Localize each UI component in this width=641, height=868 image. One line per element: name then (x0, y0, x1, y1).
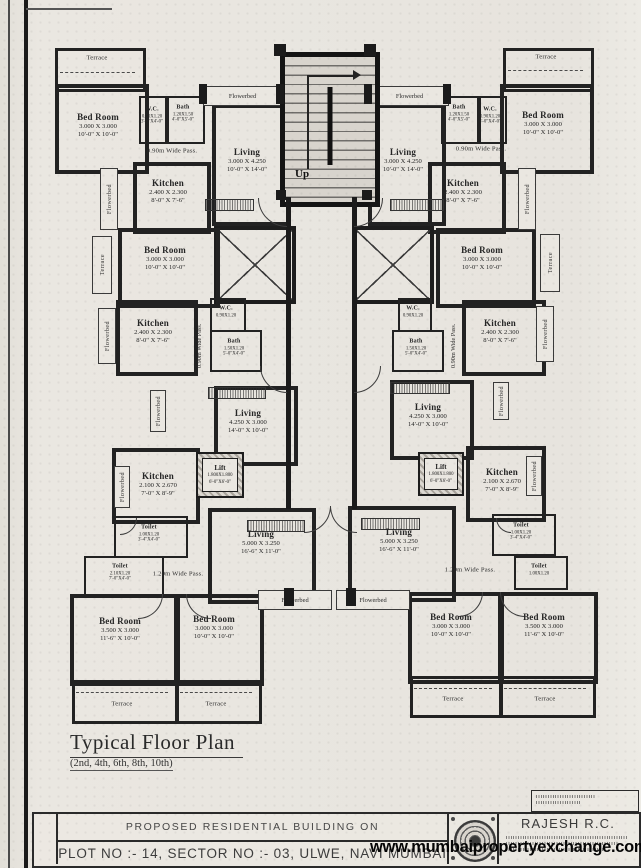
stair-up-label: Up (295, 168, 309, 180)
scanned-floor-plan-sheet: Terrace Bed Room 3.000 X 3.000 10'-0" X … (0, 0, 641, 868)
terrace-dashed-line (504, 688, 586, 689)
duct-shaft-left (214, 226, 296, 304)
duct-shaft-right (352, 226, 434, 304)
illegible-revision-text (536, 795, 596, 798)
emblem-dot (451, 817, 455, 821)
terrace-strip: Terrace (92, 236, 112, 294)
room-label-bath-top-right: Bath 1.20X1.50 4'-0"X5'-0" (448, 104, 470, 123)
room-label-bedroom-bottom-2: Bed Room 3.000 X 3.000 10'-0" X 10'-0" (193, 614, 235, 642)
room-label-bedroom-mid-left: Bed Room 3.000 X 3.000 10'-0" X 10'-0" (144, 245, 186, 273)
room-label-bedroom-top-left: Bed Room 3.000 X 3.000 10'-0" X 10'-0" (77, 112, 119, 140)
lift-right: Lift 1.800X1.800 6'-0"X6'-0" (418, 452, 464, 496)
terrace-dashed-line (414, 688, 492, 689)
room-label-kitchen-top-right: Kitchen 2.400 X 2.300 8'-0" X 7'-6" (444, 178, 482, 206)
dimension-strip (390, 199, 444, 211)
room-label-toilet-bottom-right-1: Toilet 1.00X1.20 3'-4"X4'-0" (510, 522, 532, 541)
flowerbed-strip: Flowerbed (536, 306, 554, 362)
illegible-revision-text (536, 801, 580, 804)
room-label-toilet-bottom-left-2: Toilet 2.10X1.20 7'-0"X4'-0" (109, 563, 131, 582)
room-label-bedroom-mid-right: Bed Room 3.000 X 3.000 10'-0" X 10'-0" (461, 245, 503, 273)
room-label-living-lower-left: Living 4.250 X 3.000 14'-0" X 10'-0" (228, 408, 268, 436)
room-label-living-top-right: Living 3.000 X 4.250 10'-0" X 14'-0" (383, 147, 423, 175)
door-arc (304, 506, 331, 533)
architect-name: RAJESH R.C. (499, 816, 637, 834)
terrace-dashed-line (76, 692, 168, 693)
room-label-kitchen-mid-left: Kitchen 2.400 X 2.300 8'-0" X 7'-6" (134, 318, 172, 346)
plan-subtitle: (2nd, 4th, 6th, 8th, 10th) (70, 758, 173, 771)
room-label-living-top-left: Living 3.000 X 4.250 10'-0" X 14'-0" (227, 147, 267, 175)
stair-rail (328, 87, 333, 165)
lift-left: Lift 1.800X1.800 6'-0"X6'-0" (196, 452, 244, 498)
door-arc (330, 506, 357, 533)
lift-label: Lift 1.800X1.800 6'-0"X6'-0" (428, 463, 453, 485)
room-label-toilet-bottom-right-2: Toilet 1.00X1.20 (529, 563, 549, 576)
wall-column (443, 84, 451, 104)
dimension-strip (390, 382, 450, 394)
passage-label: 0.90m Wide Pass. (147, 148, 197, 155)
room-label-bedroom-bottom-3: Bed Room 3.000 X 3.000 10'-0" X 10'-0" (430, 612, 472, 640)
door-arc (354, 366, 381, 393)
flowerbed-strip: Flowerbed (150, 390, 166, 432)
wall-column (274, 44, 286, 56)
sheet-corner-tick (26, 8, 112, 10)
wall-column (346, 588, 356, 606)
room-label-wc-top-left: W.C. 0.90X1.20 3'-0"X4'-0" (141, 106, 163, 125)
room-label-bedroom-bottom-4: Bed Room 3.500 X 3.000 11'-6" X 10'-0" (523, 612, 565, 640)
room-label-bath-mid-left: Bath 1.50X1.20 5'-0"X4'-0" (223, 338, 245, 357)
room-label-toilet-bottom-left-1: Toilet 1.00X1.20 3'-4"X4'-0" (138, 524, 160, 543)
titleblock-line1: PROPOSED RESIDENTIAL BUILDING ON (58, 814, 447, 840)
room-label-kitchen-lower-right: Kitchen 2.100 X 2.670 7'-0" X 8'-9" (483, 467, 521, 495)
room-label-bedroom-top-right: Bed Room 3.000 X 3.000 10'-0" X 10'-0" (522, 110, 564, 138)
room-label-living-lower-right: Living 4.250 X 3.000 14'-0" X 10'-0" (408, 402, 448, 430)
corridor-wall (286, 197, 291, 509)
emblem-dot (491, 817, 495, 821)
room-label-living-bottom-left: Living 5.000 X 3.250 16'-6" X 11'-0" (241, 529, 281, 557)
wall-column (364, 44, 376, 56)
plan-title: Typical Floor Plan (70, 730, 243, 758)
room-label-bath-mid-right: Bath 1.50X1.20 5'-0"X4'-0" (405, 338, 427, 357)
wall-column (364, 84, 372, 104)
flowerbed-strip: Flowerbed (203, 86, 282, 106)
terrace-dashed-line (508, 70, 583, 71)
lift-label: Lift 1.800X1.800 6'-0"X6'-0" (207, 464, 232, 486)
watermark-text: www.mumbaipropertyexchange.com (370, 838, 641, 857)
terrace-label: Terrace (535, 54, 556, 61)
passage-label: 1.20m Wide Pass. (153, 571, 203, 578)
passage-label: 0.90m Wide Pass. (456, 146, 506, 153)
flowerbed-strip: Flowerbed (98, 308, 116, 364)
dimension-strip (208, 387, 266, 399)
room-label-bedroom-bottom-1: Bed Room 3.500 X 3.000 11'-6" X 10'-0" (99, 616, 141, 644)
staircase: Up (280, 52, 380, 207)
room-label-kitchen-top-left: Kitchen 2.400 X 2.300 8'-0" X 7'-6" (149, 178, 187, 206)
wall-column (276, 84, 284, 104)
terrace-label: Terrace (111, 701, 132, 708)
terrace-label: Terrace (205, 701, 226, 708)
wall-column (284, 588, 294, 606)
room-label-living-bottom-right: Living 5.000 X 3.250 16'-6" X 11'-0" (379, 527, 419, 555)
sheet-edge-line (8, 0, 10, 868)
room-label-kitchen-mid-right: Kitchen 2.400 X 2.300 8'-0" X 7'-6" (481, 318, 519, 346)
flowerbed-strip: Flowerbed (258, 590, 332, 610)
flowerbed-strip: Flowerbed (493, 382, 509, 420)
room-label-wc-top-right: W.C. 0.90X1.20 3'-0"X4'-0" (479, 106, 501, 125)
corridor-wall (352, 197, 357, 509)
stair-arrowhead-icon (353, 70, 361, 80)
terrace-dashed-line (180, 692, 252, 693)
terrace-strip: Terrace (540, 234, 560, 292)
room-label-wc-mid-left: W.C. 0.90X1.20 (216, 305, 236, 318)
room-label-kitchen-lower-left: Kitchen 2.100 X 2.670 7'-0" X 8'-9" (139, 471, 177, 499)
wall-column (199, 84, 207, 104)
sheet-border-line (24, 0, 28, 868)
stair-up-arrow (307, 75, 309, 169)
room-label-bath-top-left: Bath 1.20X1.50 4'-0"X5'-0" (172, 104, 194, 123)
dimension-strip (205, 199, 254, 211)
flowerbed-strip: Flowerbed (100, 168, 118, 230)
terrace-label: Terrace (534, 696, 555, 703)
flowerbed-strip: Flowerbed (370, 86, 449, 106)
flowerbed-strip: Flowerbed (526, 456, 542, 496)
terrace-label: Terrace (86, 55, 107, 62)
terrace-label: Terrace (442, 696, 463, 703)
stair-up-arrow (307, 75, 355, 77)
passage-label: 1.20m Wide Pass. (445, 567, 495, 574)
passage-label-vertical: 0.90m Wide Pass. (196, 306, 203, 368)
passage-label-vertical: 0.90m Wide Pass. (450, 306, 457, 368)
flowerbed-strip: Flowerbed (114, 466, 130, 508)
flowerbed-strip: Flowerbed (518, 168, 536, 230)
terrace-dashed-line (60, 72, 135, 73)
room-label-wc-mid-right: W.C. 0.90X1.20 (403, 305, 423, 318)
